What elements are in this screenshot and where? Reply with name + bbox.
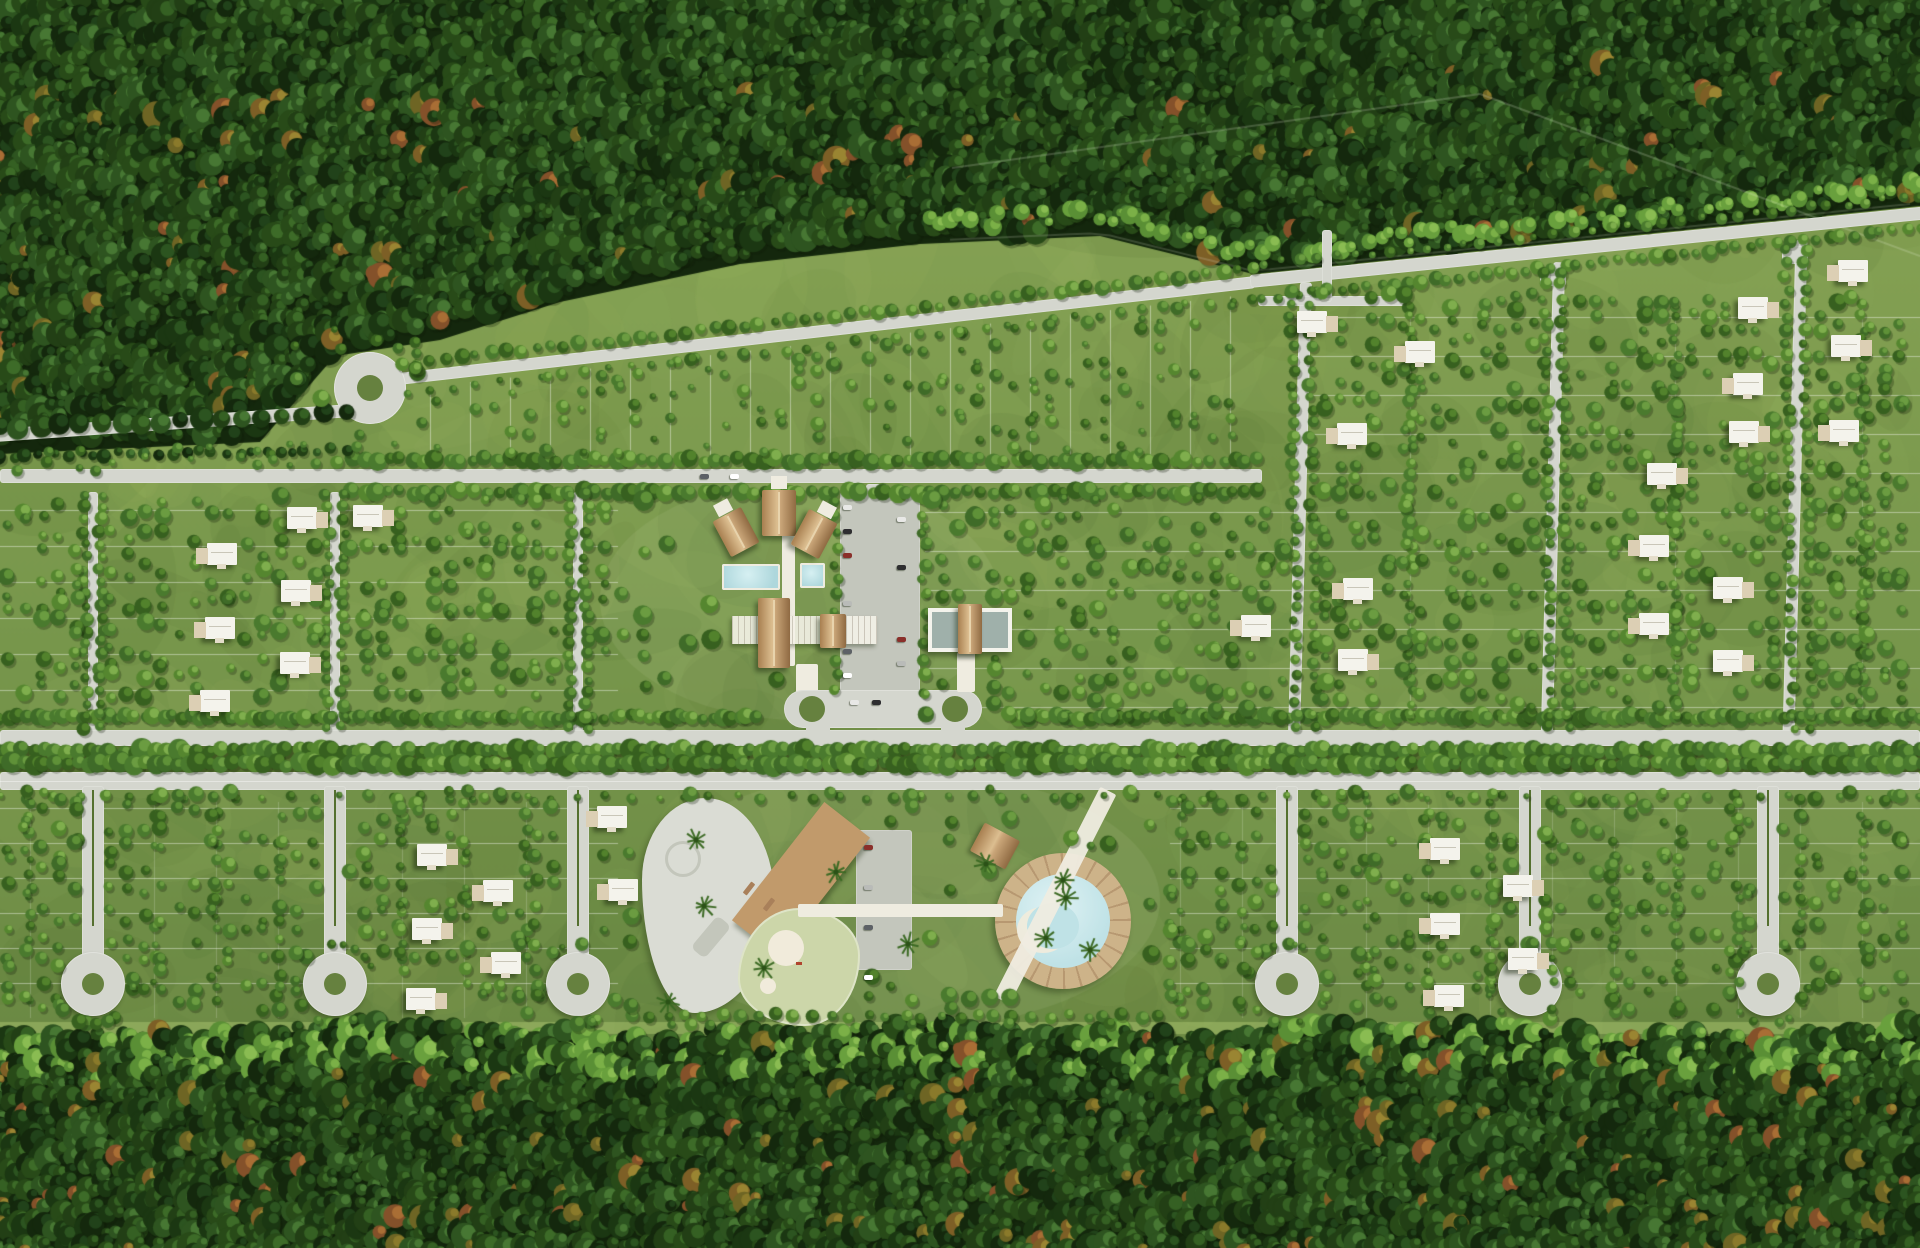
villa-terrace <box>309 657 321 673</box>
cabin-deck <box>713 498 733 517</box>
roof-ridge <box>969 606 971 652</box>
villa-patio <box>1251 636 1260 641</box>
villa-terrace <box>597 884 609 900</box>
villa-patio <box>363 526 372 531</box>
villa-terrace <box>480 957 492 973</box>
car <box>864 885 873 890</box>
villa-roofline <box>487 889 509 890</box>
car <box>897 565 906 570</box>
villa <box>1713 577 1743 599</box>
villa-patio <box>1513 896 1522 901</box>
villa-roofline <box>495 961 517 962</box>
villa-patio <box>297 528 306 533</box>
villa-terrace <box>1419 918 1431 934</box>
villa <box>1639 535 1669 557</box>
villa <box>207 543 237 565</box>
villa-terrace <box>435 993 447 1009</box>
villa-terrace <box>1367 654 1379 670</box>
villa-patio <box>422 939 431 944</box>
villa <box>1405 341 1435 363</box>
villa <box>1729 421 1759 443</box>
clubhouse-cabin <box>712 507 759 557</box>
villa-roofline <box>1507 884 1529 885</box>
roof-ridge <box>773 600 775 666</box>
villa-patio <box>1347 444 1356 449</box>
villa-patio <box>1307 332 1316 337</box>
villa <box>280 652 310 674</box>
car <box>843 529 852 534</box>
villa-terrace <box>194 622 206 638</box>
villa-terrace <box>1628 540 1640 556</box>
villa-patio <box>416 1009 425 1014</box>
villa-patio <box>1723 671 1732 676</box>
villa-patio <box>217 564 226 569</box>
villa-terrace <box>1394 346 1406 362</box>
villa <box>1508 948 1538 970</box>
villa-terrace <box>1532 880 1544 896</box>
villa-roofline <box>1717 659 1739 660</box>
villa-roofline <box>1835 344 1857 345</box>
villa <box>417 844 447 866</box>
clubhouse-cabin <box>762 490 796 536</box>
cabin-deck <box>771 476 787 489</box>
villa-terrace <box>1742 582 1754 598</box>
clubhouse-cabin <box>790 509 837 559</box>
villa-terrace <box>1860 340 1872 356</box>
villa-patio <box>215 638 224 643</box>
villa-terrace <box>1332 583 1344 599</box>
villa-roofline <box>1434 922 1456 923</box>
villa-terrace <box>1230 620 1242 636</box>
villa-patio <box>1743 394 1752 399</box>
car <box>864 975 873 980</box>
villa <box>1337 423 1367 445</box>
event-center-glazing <box>982 612 1008 648</box>
roof-ridge <box>778 492 780 534</box>
car <box>843 673 852 678</box>
villa-roofline <box>1245 624 1267 625</box>
villa-roofline <box>416 927 438 928</box>
cabin-deck <box>817 500 837 519</box>
villa-roofline <box>204 699 226 700</box>
villa-terrace <box>310 585 322 601</box>
villa-roofline <box>1347 587 1369 588</box>
villa <box>412 918 442 940</box>
villa-patio <box>1444 1006 1453 1011</box>
villa <box>483 880 513 902</box>
villa-patio <box>290 673 299 678</box>
roof-ridge <box>832 616 834 646</box>
villa-roofline <box>1733 430 1755 431</box>
villa <box>1297 311 1327 333</box>
villa-roofline <box>1438 994 1460 995</box>
villa <box>1241 615 1271 637</box>
villa-terrace <box>472 885 484 901</box>
villa-patio <box>1440 859 1449 864</box>
villa-patio <box>1518 969 1527 974</box>
villa-terrace <box>1758 426 1770 442</box>
villa <box>1647 463 1677 485</box>
villa-patio <box>1839 441 1848 446</box>
villa-patio <box>1739 442 1748 447</box>
villa <box>491 952 521 974</box>
villa-roofline <box>1342 658 1364 659</box>
villa-terrace <box>586 811 598 827</box>
villa <box>1733 373 1763 395</box>
event-center-roof <box>958 604 982 654</box>
villa-roofline <box>1643 544 1665 545</box>
villa-patio <box>493 901 502 906</box>
villa-patio <box>1848 281 1857 286</box>
villa-roofline <box>1833 429 1855 430</box>
villa-patio <box>607 827 616 832</box>
villa-patio <box>427 865 436 870</box>
car <box>850 700 859 705</box>
villa-roofline <box>1651 472 1673 473</box>
villa <box>353 505 383 527</box>
clubhouse-hall <box>758 598 790 668</box>
event-center-glazing <box>932 612 958 648</box>
car <box>843 553 852 558</box>
villa-terrace <box>1676 468 1688 484</box>
car <box>730 474 739 479</box>
buildings-layer <box>0 0 1920 1248</box>
villa-roofline <box>291 516 313 517</box>
villa-patio <box>1649 634 1658 639</box>
villa-patio <box>1841 356 1850 361</box>
villa-patio <box>1353 599 1362 604</box>
villa-patio <box>1440 934 1449 939</box>
villa-roofline <box>1341 432 1363 433</box>
villa-terrace <box>441 923 453 939</box>
villa-roofline <box>211 552 233 553</box>
villa-terrace <box>196 548 208 564</box>
villa <box>1430 913 1460 935</box>
villa <box>597 806 627 828</box>
villa-patio <box>1657 484 1666 489</box>
villa-roofline <box>601 815 623 816</box>
villa-patio <box>1348 670 1357 675</box>
villa <box>1338 649 1368 671</box>
car <box>897 517 906 522</box>
villa-terrace <box>1419 843 1431 859</box>
villa-terrace <box>189 695 201 711</box>
villa-roofline <box>1409 350 1431 351</box>
villa <box>608 879 638 901</box>
villa <box>205 617 235 639</box>
villa-patio <box>618 900 627 905</box>
villa-roofline <box>410 997 432 998</box>
villa-terrace <box>1818 425 1830 441</box>
villa-patio <box>1415 362 1424 367</box>
villa-roofline <box>421 853 443 854</box>
villa <box>281 580 311 602</box>
roof-ridge <box>727 516 746 549</box>
car <box>843 649 852 654</box>
villa <box>1434 985 1464 1007</box>
villa-terrace <box>1742 655 1754 671</box>
villa-patio <box>1748 318 1757 323</box>
villa-terrace <box>382 510 394 526</box>
villa-roofline <box>1643 622 1665 623</box>
villa-terrace <box>446 849 458 865</box>
clubhouse-deck-bar <box>732 616 877 644</box>
villa-terrace <box>1423 990 1435 1006</box>
villa-patio <box>501 973 510 978</box>
villa-roofline <box>1842 269 1864 270</box>
villa <box>287 507 317 529</box>
villa <box>1713 650 1743 672</box>
villa <box>200 690 230 712</box>
villa-patio <box>291 601 300 606</box>
car <box>897 637 906 642</box>
villa-terrace <box>1537 953 1549 969</box>
villa-roofline <box>357 514 379 515</box>
villa-roofline <box>1737 382 1759 383</box>
villa-terrace <box>1827 265 1839 281</box>
villa-roofline <box>1434 847 1456 848</box>
villa <box>1430 838 1460 860</box>
villa-roofline <box>612 888 634 889</box>
villa <box>1503 875 1533 897</box>
car <box>864 845 873 850</box>
villa-roofline <box>284 661 306 662</box>
villa <box>1738 297 1768 319</box>
villa-terrace <box>1767 302 1779 318</box>
villa-roofline <box>1742 306 1764 307</box>
villa <box>406 988 436 1010</box>
villa <box>1831 335 1861 357</box>
villa-roofline <box>209 626 231 627</box>
villa-terrace <box>1722 378 1734 394</box>
villa-roofline <box>285 589 307 590</box>
villa <box>1829 420 1859 442</box>
villa-terrace <box>1628 618 1640 634</box>
villa-patio <box>1723 598 1732 603</box>
villa-terrace <box>1326 428 1338 444</box>
clubhouse-pavilion <box>820 614 846 648</box>
villa-terrace <box>316 512 328 528</box>
car <box>843 505 852 510</box>
car <box>864 925 873 930</box>
villa-roofline <box>1512 957 1534 958</box>
car <box>897 661 906 666</box>
villa <box>1838 260 1868 282</box>
villa-terrace <box>1326 316 1338 332</box>
villa-roofline <box>1717 586 1739 587</box>
car <box>872 700 881 705</box>
villa-patio <box>1649 556 1658 561</box>
masterplan-scene <box>0 0 1920 1248</box>
car <box>843 601 852 606</box>
villa-patio <box>210 711 219 716</box>
roof-ridge <box>805 518 824 551</box>
villa-roofline <box>1301 320 1323 321</box>
villa <box>1343 578 1373 600</box>
villa <box>1639 613 1669 635</box>
car <box>700 474 709 479</box>
